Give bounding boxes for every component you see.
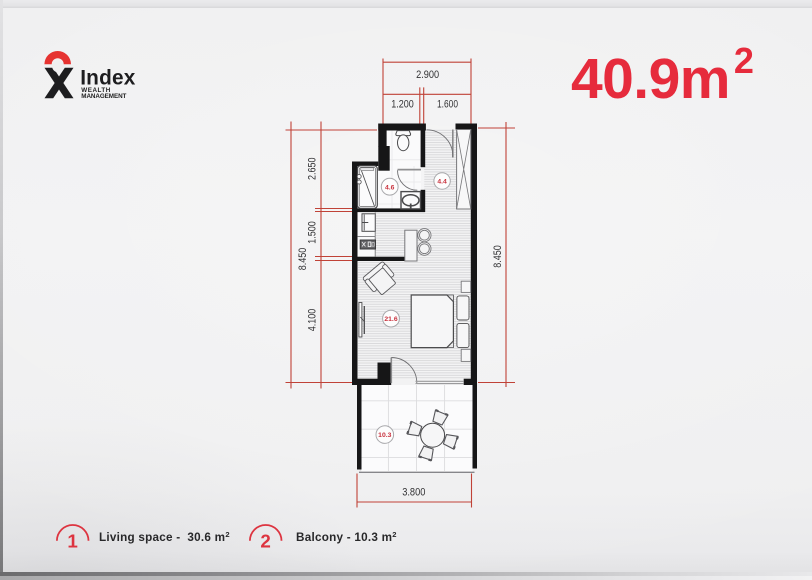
svg-text:2.650: 2.650 bbox=[307, 157, 319, 180]
svg-text:8.450: 8.450 bbox=[297, 248, 309, 271]
svg-text:2.900: 2.900 bbox=[416, 69, 439, 81]
svg-text:Index: Index bbox=[80, 66, 136, 89]
svg-text:Living space - 30.6 m2: Living space - 30.6 m2 bbox=[99, 530, 230, 544]
svg-text:4.4: 4.4 bbox=[437, 179, 447, 186]
svg-text:8.450: 8.450 bbox=[492, 245, 504, 268]
svg-text:4.6: 4.6 bbox=[385, 184, 395, 191]
svg-text:2: 2 bbox=[260, 530, 270, 551]
svg-text:1: 1 bbox=[67, 530, 77, 551]
svg-text:MANAGEMENT: MANAGEMENT bbox=[81, 93, 126, 100]
svg-text:1.600: 1.600 bbox=[437, 99, 458, 111]
svg-text:1.500: 1.500 bbox=[307, 221, 319, 244]
svg-text:10.3: 10.3 bbox=[378, 432, 391, 439]
svg-text:21.6: 21.6 bbox=[384, 316, 397, 323]
svg-text:1.200: 1.200 bbox=[391, 99, 414, 111]
svg-text:Balcony - 10.3 m2: Balcony - 10.3 m2 bbox=[296, 530, 397, 544]
svg-text:3.800: 3.800 bbox=[402, 487, 425, 499]
svg-text:4.100: 4.100 bbox=[307, 309, 319, 332]
